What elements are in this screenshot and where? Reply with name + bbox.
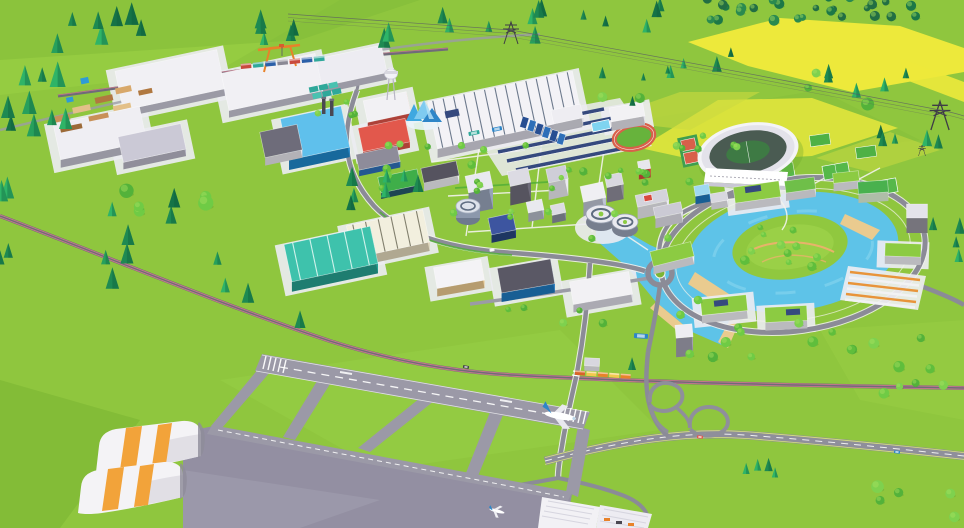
- service-vehicle-1: [604, 518, 610, 521]
- green-facade-ne: [858, 180, 889, 203]
- service-vehicle-3: [628, 523, 634, 526]
- ring-bldg-e: [885, 243, 921, 265]
- service-vehicle-2: [616, 521, 622, 524]
- round-office-tower: [456, 199, 480, 225]
- office-tower-c: [546, 165, 568, 200]
- campus-cube-1: [526, 199, 544, 222]
- stadium-annex-white: [710, 191, 728, 210]
- ring-tower-e: [907, 204, 928, 233]
- stadium-annex-blue: [694, 184, 711, 204]
- campus-north-2: [784, 177, 815, 201]
- aerial-campus-map: [0, 0, 964, 528]
- ring-bldg-sw: [700, 295, 747, 324]
- scene-svg: [0, 0, 964, 528]
- red-hut: [644, 194, 653, 201]
- ring-bldg-ne: [833, 171, 860, 192]
- campus-cube-2: [550, 203, 566, 224]
- rail-station: [584, 358, 599, 372]
- bus-blue: [634, 333, 648, 339]
- car-red: [697, 435, 703, 439]
- office-tower-b: [507, 167, 531, 205]
